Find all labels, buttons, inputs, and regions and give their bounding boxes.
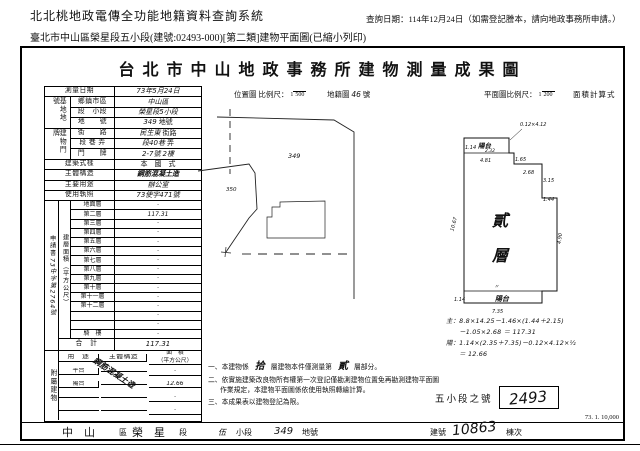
application-number: 申請書73中字第2764號: [45, 201, 59, 351]
document-subtitle: 臺北市中山區榮星段五小段(建號:02493-000)[第二類]建物平面圖(已縮小…: [30, 29, 366, 44]
floor-label: 第五層: [71, 238, 115, 247]
street-label: 街 路: [71, 129, 115, 139]
footer-lot: 349: [274, 426, 293, 437]
query-date: 查詢日期：114年12月24日（如需登記謄本，請向地政事務所申請。）: [366, 13, 621, 25]
floor-label: 第九層: [71, 275, 115, 284]
page-bottom-rule: [0, 444, 640, 445]
lot-label-main: 349: [288, 152, 300, 160]
door-plate-label: 門 牌: [71, 149, 115, 159]
floor-area-group-label: 建層面積（平方公尺）: [59, 201, 71, 339]
annex-area: [149, 394, 201, 402]
section-value: 榮星段5小段: [115, 108, 201, 118]
annex-use-balcony: 陽台: [59, 381, 99, 388]
floor-label: 第六層: [71, 247, 115, 256]
floor-value: [115, 256, 201, 265]
annotation-leader: [510, 129, 522, 140]
street-value: 民生東街路: [115, 129, 201, 139]
use-value: 辦公室: [115, 181, 201, 191]
floor-label: 第七層: [71, 256, 115, 265]
building-number-box: 2493: [499, 386, 559, 409]
footer-building-no: 10863: [451, 419, 497, 440]
dim-left: 10.67: [450, 216, 460, 232]
lane-value: 段40巷弄: [115, 139, 201, 149]
floor-value: [115, 293, 201, 302]
lot-number-value: 349地號: [115, 118, 201, 128]
license-label: 使用執照: [45, 191, 115, 201]
application-label: 申請書: [48, 235, 54, 257]
footer-district-unit: 區: [119, 427, 127, 438]
address-group-label: 建物門牌: [45, 129, 71, 160]
floor-label: 第十一層: [71, 293, 115, 302]
annex-group-label: 附屬建物: [45, 351, 59, 420]
location-map: 349 350: [192, 96, 432, 358]
use-label: 主要用途: [45, 181, 115, 191]
dim-bottom-left: 1.14: [454, 297, 465, 303]
building-info-table: 測量日期 73年5月24日 基地地號 鄉鎮市區 中山區 段 小段 榮星段5小段 …: [44, 86, 202, 422]
footer-district: 中 山: [62, 424, 95, 440]
floor-value: [115, 220, 201, 229]
annex-area-header-main: 面 積: [166, 351, 183, 356]
plan-scale-fraction: 1200: [539, 92, 555, 98]
floor-label: [71, 321, 115, 330]
system-title: 北北桃地政電傳全功能地籍資料查詢系統: [30, 7, 264, 24]
footer-subsection: 伍: [218, 427, 226, 438]
footer-section: 榮 星: [132, 424, 165, 440]
floor-label: 第二層: [71, 210, 115, 219]
plan-scale-label: 平面圖比例尺：: [484, 90, 537, 99]
note-1: 一、本建物係拾層建物本件僅測量第貳層部分。: [208, 359, 442, 375]
floor-plan: 1.14 陽台 2.32 0.12×4.12 4.81 1.65 2.68 3.…: [422, 111, 622, 323]
building-number-value: 2493: [509, 387, 549, 408]
floor-total-label: 合 計: [59, 339, 115, 351]
lot-number-unit: 地號: [159, 119, 173, 126]
dim-notch-len: 2.32: [485, 148, 495, 154]
annex-area: [149, 407, 201, 415]
floor-value: [115, 238, 201, 247]
floor-value: [115, 275, 201, 284]
footer-divider: [22, 422, 623, 423]
structure-label: 主體構造: [45, 170, 115, 180]
area-calc-label: 面積計算式: [573, 89, 616, 100]
floor-label: 第三層: [71, 220, 115, 229]
floor-label-arcade: 騎 樓: [71, 330, 115, 339]
section-label: 段 小段: [71, 108, 115, 118]
floor-value: [115, 312, 201, 321]
site-lot-group-label: 基地地號: [45, 97, 71, 128]
lot-number-hw: 349: [143, 119, 156, 126]
note1-floors-hw: 拾: [255, 361, 265, 372]
annex-structure: [101, 397, 147, 398]
floor-label: 第四層: [71, 229, 115, 238]
survey-date-label: 測量日期: [45, 87, 115, 97]
application-value: 73中字第2764號: [48, 258, 54, 316]
door-plate-value: 2-7號2樓: [115, 149, 201, 159]
license-value: 73使字471號: [115, 191, 201, 201]
dim-notch-width: 1.14: [465, 145, 476, 151]
annex-use: 平台: [59, 368, 99, 375]
annex-structure-header: 主體構造: [101, 354, 147, 362]
lot-label-left: 350: [226, 187, 237, 193]
lot-number-label: 地 號: [71, 118, 115, 128]
calc-line: 主：8.8×14.25－1.46×(1.44＋2.15): [446, 316, 636, 327]
style-label: 建築式樣: [45, 160, 115, 170]
note-2: 二、依實施建築改良物所有權第一次登記僅勘測建物位置免再勘測建物平面圖作業規定，本…: [208, 376, 442, 397]
land-registry-query-page: { "header": { "system_title": "北北桃地政電傳全功…: [0, 0, 640, 451]
notes: 一、本建物係拾層建物本件僅測量第貳層部分。 二、依實施建築改良物所有權第一次登記…: [208, 359, 442, 409]
ditto-mark: 〃: [494, 284, 499, 290]
lane-label: 段 巷 弄: [71, 139, 115, 149]
lane-unit: 弄: [167, 140, 174, 147]
floor-value: [115, 247, 201, 256]
note1-mid: 層建物本件僅測量第: [271, 364, 332, 371]
section-number-row: 五小段之號 2493: [435, 386, 559, 409]
floor-value: [115, 321, 201, 330]
floor-value: [115, 201, 201, 210]
floor-total-value: 117.31: [115, 339, 201, 351]
township-value: 中山區: [115, 97, 201, 107]
section-number-label: 五小段之號: [435, 391, 493, 405]
annex-area-balcony: 12.66: [149, 381, 201, 388]
dim-step-c: 3.15: [543, 178, 554, 184]
note1-part-hw: 貳: [338, 361, 348, 372]
floor-value: [115, 284, 201, 293]
calc-line: 陽：1.14×(2.35＋7.35)－0.12×4.12×½: [446, 338, 636, 349]
annex-use: [59, 397, 99, 398]
dim-right: 4.90: [557, 233, 564, 245]
floor-label: [71, 312, 115, 321]
floor-value: [115, 302, 201, 311]
floor-label: 第八層: [71, 266, 115, 275]
print-code: 73. 1. 10,000: [585, 414, 619, 421]
dim-bottom: 7.35: [492, 309, 503, 315]
annex-area: [149, 368, 201, 376]
plan-outline: [464, 138, 557, 303]
dim-annotation: 0.12×4.12: [520, 122, 546, 128]
document-title: 台北市中山地政事務所建物測量成果圖: [22, 56, 623, 80]
footer-lot-unit: 地號: [302, 427, 318, 438]
floor-label: 第十二層: [71, 302, 115, 311]
calc-line: －1.05×2.68 ＝ 117.31: [446, 327, 636, 338]
style-value: 本 國 式: [115, 160, 201, 170]
annex-use: [59, 410, 99, 411]
note1-post: 層部分。: [354, 364, 381, 371]
balcony-bottom-label: 陽台: [495, 294, 510, 303]
plan-scale-denominator: 200: [542, 91, 555, 98]
lane-hw: 段40巷: [142, 140, 165, 147]
area-calculation: 主：8.8×14.25－1.46×(1.44＋2.15) －1.05×2.68 …: [446, 316, 636, 360]
dim-top: 4.81: [480, 158, 491, 164]
floor-value: [115, 266, 201, 275]
floor-value-2f: 117.31: [115, 210, 201, 219]
survey-date-value: 73年5月24日: [115, 87, 201, 97]
dim-step-a: 1.65: [515, 157, 526, 163]
footer-section-unit: 段: [179, 427, 187, 438]
street-unit: 街路: [163, 130, 177, 137]
annex-area-header-unit: （平方公尺）: [158, 358, 193, 364]
dim-step-b: 2.68: [523, 170, 534, 176]
plan-scale: 平面圖比例尺：1200: [484, 89, 557, 100]
calc-line: ＝ 12.66: [446, 349, 636, 360]
floor-char-2: 層: [491, 246, 510, 265]
structure-value: 鋼筋混凝土造: [115, 170, 201, 180]
annex-structure: [101, 410, 147, 411]
dim-step-d: 1.44: [543, 197, 554, 203]
footer-building-label: 建號: [430, 427, 446, 438]
floor-value: [115, 330, 201, 339]
floor-label: 第十層: [71, 284, 115, 293]
floor-char-1: 貳: [491, 211, 511, 230]
floor-label: 地面層: [71, 201, 115, 210]
township-label: 鄉鎮市區: [71, 97, 115, 107]
footer-unit-label: 棟次: [506, 427, 522, 438]
door-plate-hw: 2-7號: [142, 151, 160, 158]
block-boundary: [217, 117, 354, 299]
note1-pre: 一、本建物係: [208, 364, 249, 371]
note-3: 三、本成果表以建物登記為限。: [208, 398, 442, 409]
parcel-boundary: [198, 164, 257, 252]
floor-value: [115, 229, 201, 238]
survey-result-sheet: 台北市中山地政事務所建物測量成果圖 位置圖 比例尺：1500 地籍圖 46 號 …: [20, 46, 625, 441]
door-plate-floor: 2樓: [162, 151, 173, 158]
building-footprint: [267, 201, 325, 238]
street-hw: 民生東: [140, 130, 161, 137]
footer-subsection-unit: 小段: [236, 427, 252, 438]
